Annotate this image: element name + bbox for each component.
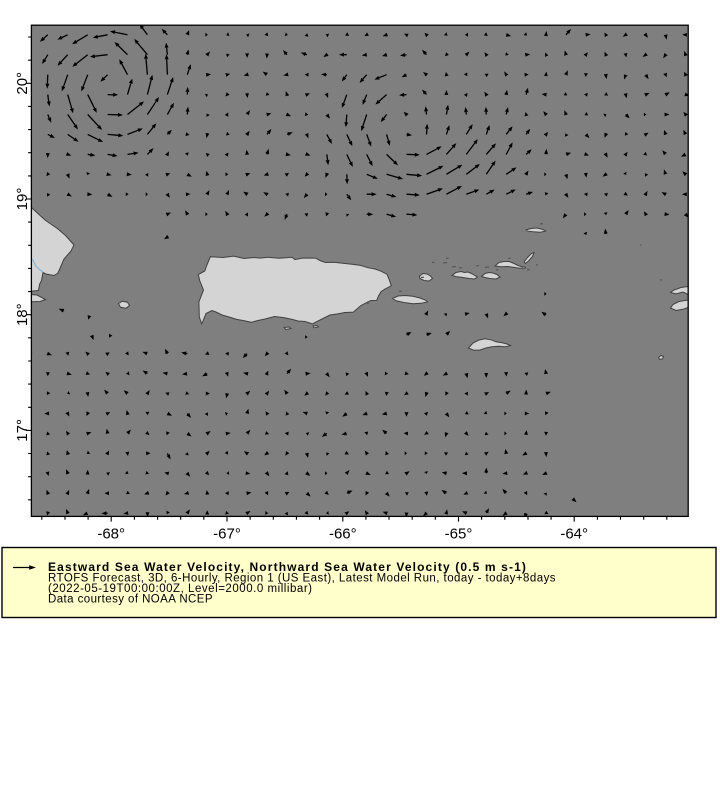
svg-text:18°: 18° [14,303,31,326]
svg-text:-67°: -67° [213,526,241,543]
svg-text:-66°: -66° [329,526,357,543]
svg-text:19°: 19° [14,188,31,211]
svg-text:17°: 17° [14,419,31,442]
svg-text:Data courtesy of NOAA NCEP: Data courtesy of NOAA NCEP [48,594,213,606]
svg-text:-64°: -64° [560,526,588,543]
svg-text:-68°: -68° [97,526,125,543]
svg-text:20°: 20° [14,72,31,95]
svg-text:-65°: -65° [445,526,473,543]
